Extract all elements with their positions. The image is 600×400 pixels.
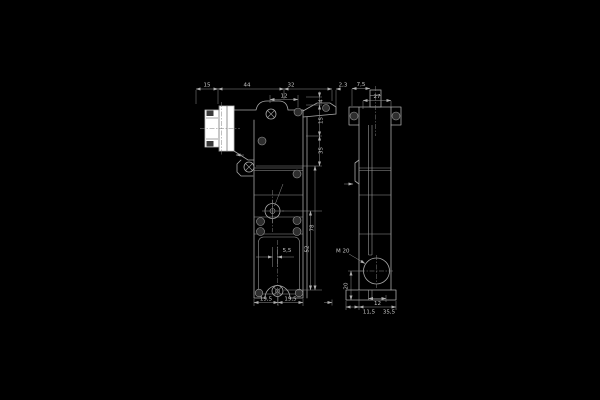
dimension-label: 15 [204,83,211,89]
actuator-hole [262,200,284,223]
front-body-outline [234,101,336,298]
dimension-label: 44 [244,83,251,89]
dimension-label: 19,5 [260,297,273,303]
technical-drawing-canvas: 15 44 32 2,3 12 4 15 35 78 52 [0,0,600,400]
dimension-label: 27 [374,94,381,100]
dimension-label: 15 [319,117,325,124]
dimension-label: 20 [344,282,350,289]
dimension-label: 2,3 [339,83,348,89]
dimension-label: 35,5 [383,310,396,316]
dimension-label: 78 [310,224,316,231]
front-view: 15 44 32 2,3 12 4 15 35 78 52 [196,83,348,307]
dimension-label: 12 [281,94,288,100]
screw-holes [255,105,329,297]
dimension-label: 11,5 [363,310,376,316]
dimension-label: 12 [374,301,381,307]
cable-gland: M 20 [336,249,393,289]
side-body-outline [346,86,401,300]
side-view: M 20 7,5 27 20 12 11,5 35,5 [336,82,401,316]
dimension-label: 7,5 [357,82,366,88]
gland-label: M 20 [336,249,350,255]
dimension-label: 5,5 [283,248,292,254]
dimension-label: 35 [319,147,325,154]
dimension-label: 19,5 [284,297,297,303]
dimension-drawing: 15 44 32 2,3 12 4 15 35 78 52 [0,0,600,400]
dimension-label: 32 [288,83,295,89]
connector-block [200,102,240,156]
dimension-label: 4 [319,99,325,103]
dimension-label: 52 [305,246,311,253]
